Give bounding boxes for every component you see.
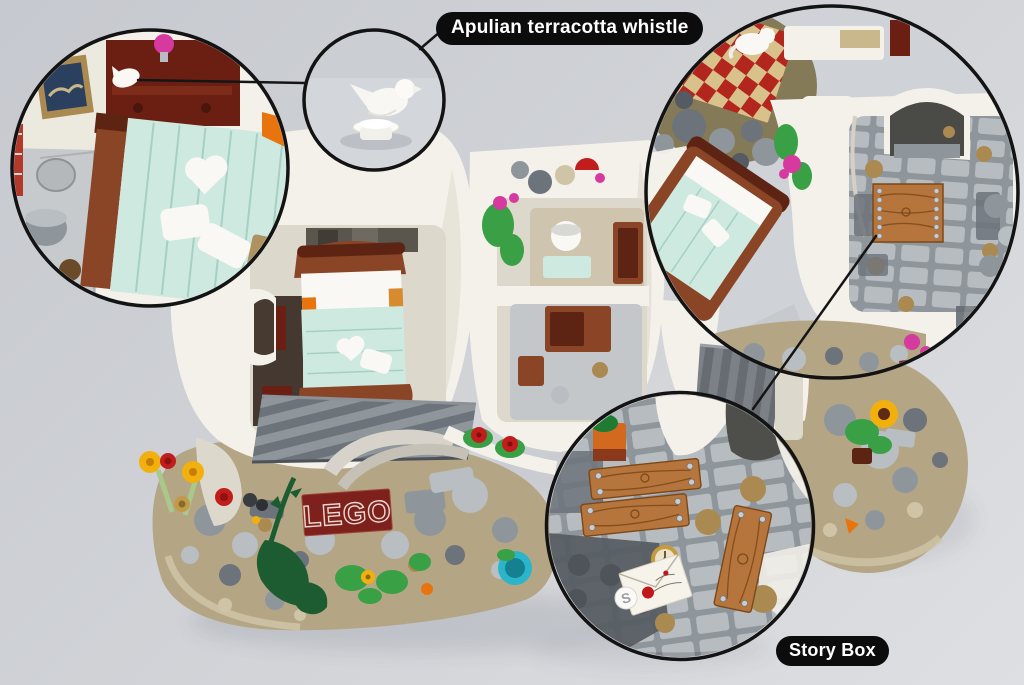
lower-room <box>510 304 642 420</box>
photo-artwork: LEGO <box>0 0 1024 685</box>
storybox-callout-text: Story Box <box>789 641 876 659</box>
whistle-callout-text: Apulian terracotta whistle <box>451 18 688 37</box>
main-bed <box>293 239 413 421</box>
annotated-lego-photo: LEGO <box>0 0 1024 685</box>
lego-logo-brick: LEGO <box>301 489 393 536</box>
upper-room <box>530 208 644 290</box>
s-round-tile: S <box>615 587 637 609</box>
wall-picture <box>34 55 94 120</box>
storybox-callout-label: Story Box <box>776 636 889 666</box>
whistle-callout-label: Apulian terracotta whistle <box>436 12 703 45</box>
story-box-trapdoor <box>873 184 943 242</box>
lego-logo-text: LEGO <box>302 495 393 534</box>
